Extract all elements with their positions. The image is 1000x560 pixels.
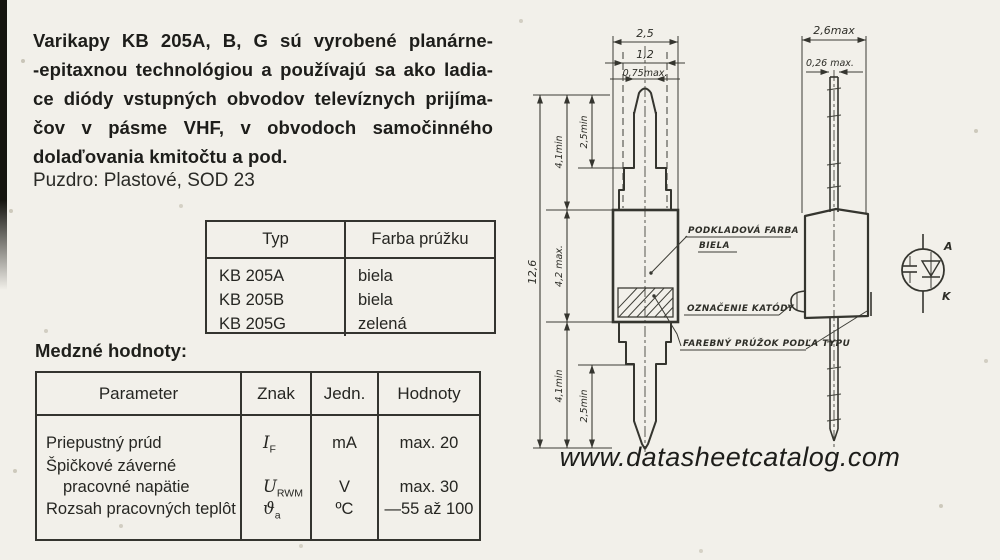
cathode-stripe-hatch [607, 285, 694, 320]
dim-side-width-label: 2,6max [813, 24, 855, 37]
callout-base-color-line1: PODKLADOVÁ FARBA [688, 224, 799, 236]
dim-lead-top-label: 4,1min [554, 135, 565, 168]
datasheet-page: Varikapy KB 205A, B, G sú vyrobené planá… [0, 0, 1000, 560]
dim-tip-top-label: 2,5min [579, 115, 590, 148]
dim-lead-bottom-label: 4,1min [554, 369, 565, 402]
dim-body-width-label: 2,5 [636, 27, 654, 40]
dim-body-length-label: 4,2 max. [554, 245, 565, 287]
diode-glyph [922, 252, 940, 288]
varicap-symbol [902, 234, 944, 313]
callout-cathode-marking: OZNAČENIE KATÓDY [687, 302, 795, 314]
anode-pin-label: A [943, 240, 953, 253]
package-drawing: 2,5 1,2 0,75max. 12,6 4,1min 2,5min 4,2 … [0, 0, 1000, 560]
cathode-pin-label: K [942, 290, 952, 303]
dim-step-width-label: 1,2 [636, 48, 654, 61]
front-view-outline [607, 46, 694, 452]
dim-tip-bottom-label: 2,5min [579, 389, 590, 422]
callout-base-color-line2: BIELA [699, 241, 730, 251]
dim-lead-width-label: 0,75max. [623, 68, 668, 79]
callout-color-stripe: FAREBNÝ PRÚŽOK PODĽA TYPU [683, 337, 850, 349]
side-view [791, 36, 871, 448]
dim-total-length-label: 12,6 [526, 260, 539, 285]
dim-side-thickness-label: 0,26 max. [806, 58, 854, 69]
